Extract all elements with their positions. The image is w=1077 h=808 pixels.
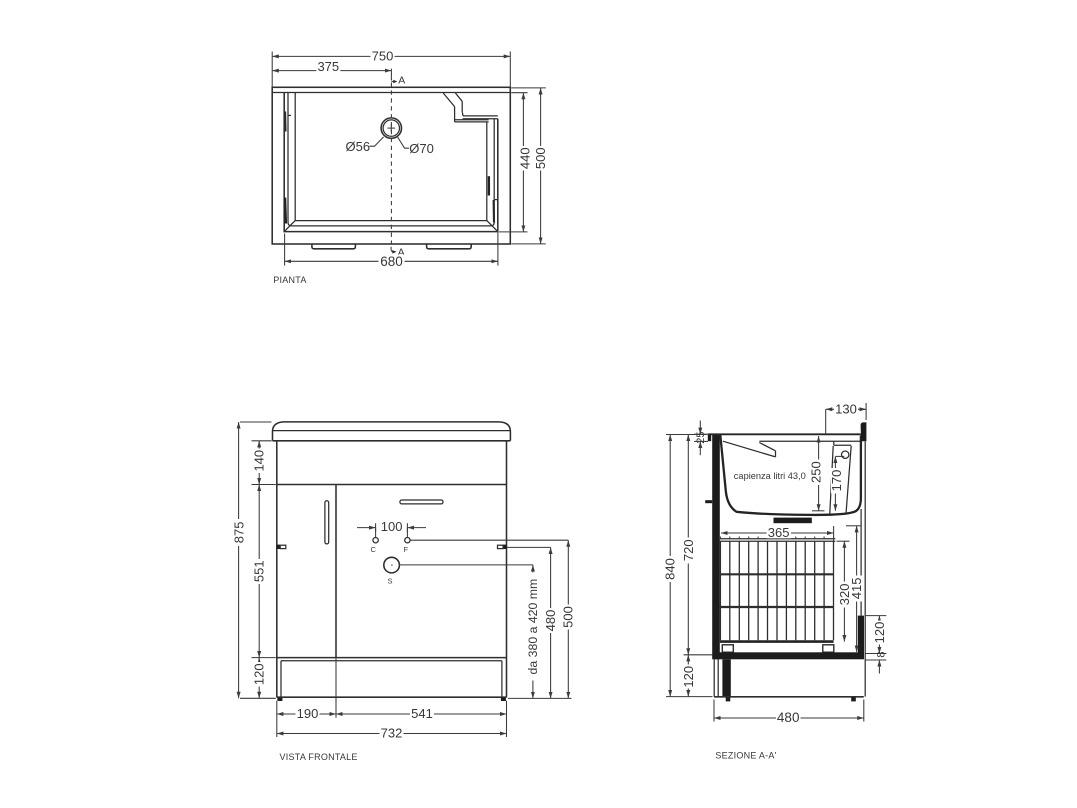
svg-text:F: F [404, 545, 409, 554]
svg-text:VISTA FRONTALE: VISTA FRONTALE [280, 752, 358, 762]
svg-text:190: 190 [297, 706, 319, 721]
svg-text:120: 120 [252, 663, 267, 685]
svg-text:365: 365 [768, 525, 790, 540]
svg-text:440: 440 [517, 147, 532, 169]
svg-text:541: 541 [411, 706, 433, 721]
svg-text:130: 130 [835, 401, 857, 416]
svg-text:250: 250 [808, 461, 823, 483]
svg-text:680: 680 [380, 254, 403, 269]
svg-text:SEZIONE A-A': SEZIONE A-A' [715, 751, 776, 761]
svg-text:732: 732 [381, 726, 403, 741]
svg-text:C: C [370, 545, 376, 554]
svg-text:capienza litri 43,0: capienza litri 43,0 [734, 471, 806, 481]
svg-text:140: 140 [252, 450, 267, 472]
svg-text:Ø70: Ø70 [409, 141, 434, 156]
svg-text:S: S [387, 577, 392, 586]
svg-text:Ø56: Ø56 [346, 139, 371, 154]
svg-text:25: 25 [695, 431, 707, 443]
svg-text:415: 415 [849, 578, 864, 600]
svg-text:720: 720 [681, 539, 696, 561]
svg-text:da 380 a 420 mm: da 380 a 420 mm [526, 579, 540, 675]
svg-text:A: A [398, 75, 405, 87]
svg-text:840: 840 [663, 558, 678, 580]
svg-text:551: 551 [252, 560, 267, 582]
svg-text:PIANTA: PIANTA [273, 275, 306, 285]
svg-text:375: 375 [317, 59, 339, 74]
svg-text:170: 170 [829, 470, 844, 492]
svg-text:120: 120 [872, 622, 887, 644]
svg-text:500: 500 [533, 147, 548, 169]
svg-text:500: 500 [561, 606, 576, 628]
svg-text:480: 480 [543, 610, 558, 632]
svg-text:100: 100 [381, 519, 403, 534]
svg-text:875: 875 [231, 522, 246, 544]
svg-text:8: 8 [876, 651, 888, 657]
svg-text:120: 120 [681, 666, 696, 688]
svg-text:750: 750 [372, 48, 394, 63]
svg-text:480: 480 [777, 710, 800, 725]
